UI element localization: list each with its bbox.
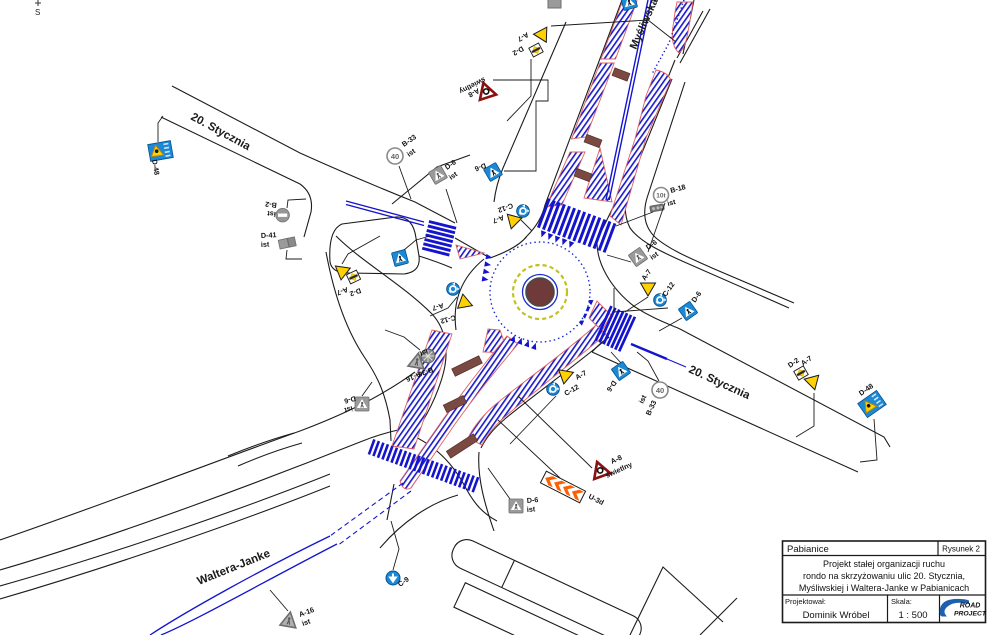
svg-text:Projektował:: Projektował: bbox=[785, 597, 826, 606]
svg-text:1 : 500: 1 : 500 bbox=[898, 610, 927, 621]
svg-text:ist: ist bbox=[526, 504, 536, 514]
svg-text:Skala:: Skala: bbox=[891, 597, 912, 606]
svg-text:rondo na skrzyżowaniu ulic 20.: rondo na skrzyżowaniu ulic 20. Stycznia, bbox=[803, 571, 965, 581]
svg-text:PROJECT: PROJECT bbox=[954, 611, 987, 618]
svg-text:Pabianice: Pabianice bbox=[787, 544, 829, 555]
svg-text:Rysunek 2: Rysunek 2 bbox=[942, 545, 980, 554]
svg-text:Myśliwskiej i Waltera-Janke w: Myśliwskiej i Waltera-Janke w Pabianicac… bbox=[799, 583, 969, 593]
svg-text:Dominik Wróbel: Dominik Wróbel bbox=[803, 610, 870, 621]
svg-text:D-41: D-41 bbox=[261, 230, 277, 240]
svg-text:B-2: B-2 bbox=[265, 200, 278, 210]
svg-text:ROAD: ROAD bbox=[960, 603, 981, 610]
svg-text:S: S bbox=[35, 8, 40, 17]
svg-text:ist: ist bbox=[261, 240, 270, 249]
svg-text:D-6: D-6 bbox=[526, 495, 538, 505]
svg-text:Projekt stałej organizacji ruc: Projekt stałej organizacji ruchu bbox=[823, 559, 945, 569]
